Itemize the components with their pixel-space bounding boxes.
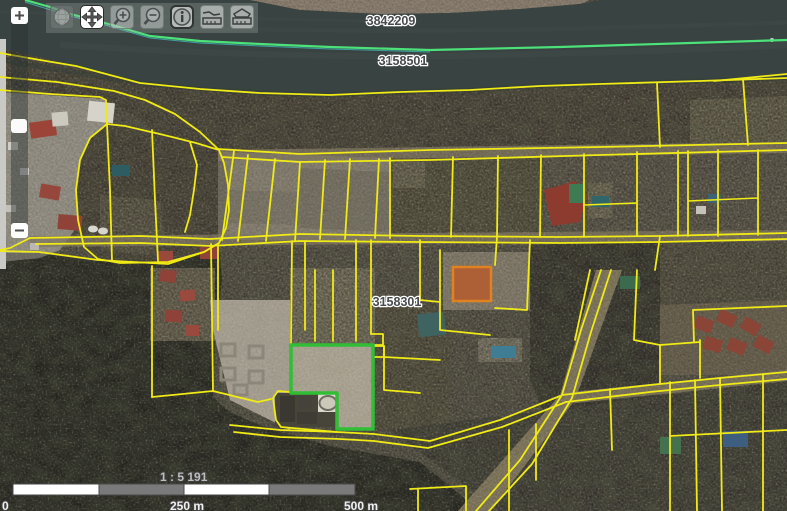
svg-text:250 m: 250 m — [170, 499, 204, 511]
svg-text:3158301: 3158301 — [373, 295, 422, 309]
svg-text:0: 0 — [2, 499, 9, 511]
svg-text:3842209: 3842209 — [367, 14, 416, 28]
svg-text:1 : 5 191: 1 : 5 191 — [160, 470, 208, 484]
svg-text:3158501: 3158501 — [379, 54, 428, 68]
svg-text:500 m: 500 m — [344, 499, 378, 511]
